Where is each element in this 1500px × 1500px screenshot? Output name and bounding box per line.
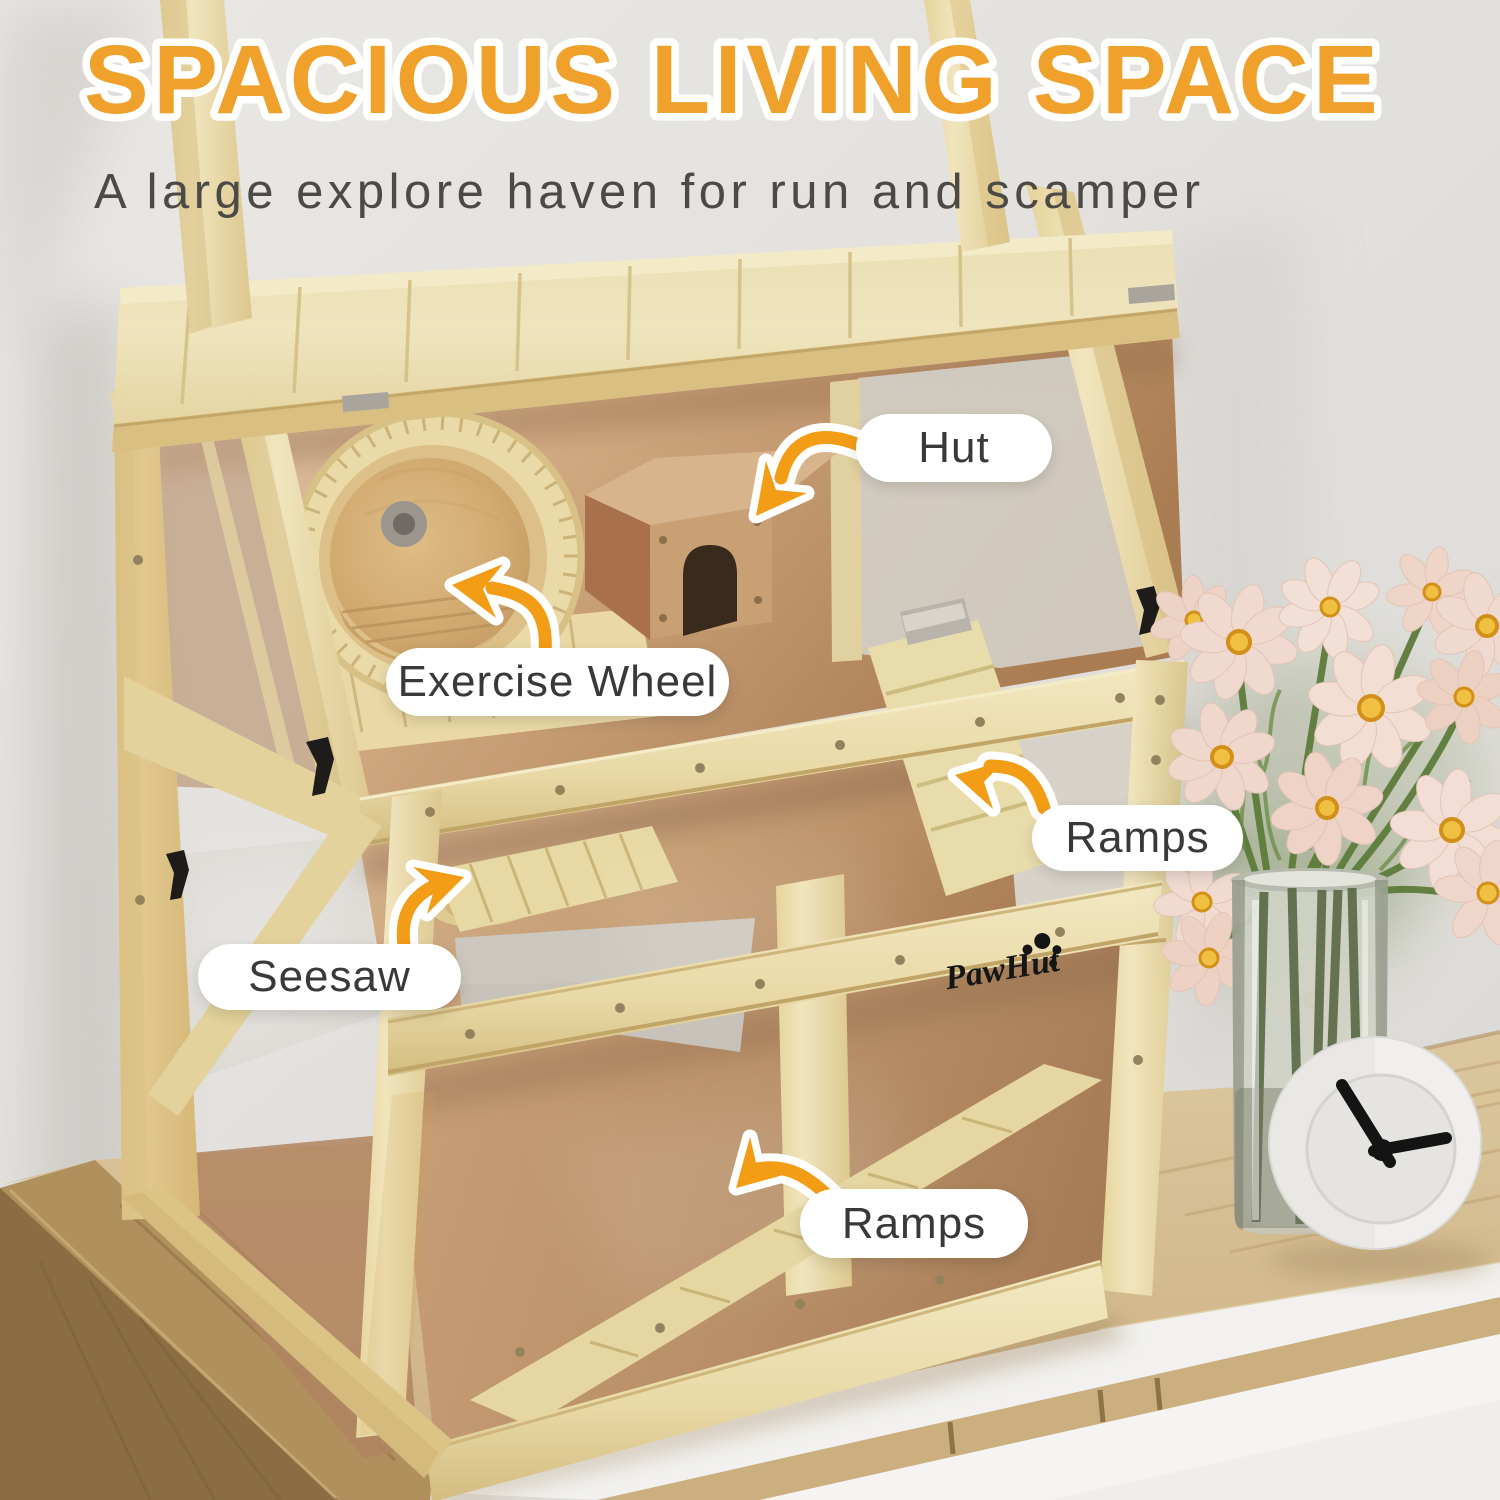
svg-text:SPACIOUS LIVING SPACE: SPACIOUS LIVING SPACE xyxy=(84,25,1382,134)
svg-text:A large explore haven for run: A large explore haven for run and scampe… xyxy=(94,165,1205,219)
